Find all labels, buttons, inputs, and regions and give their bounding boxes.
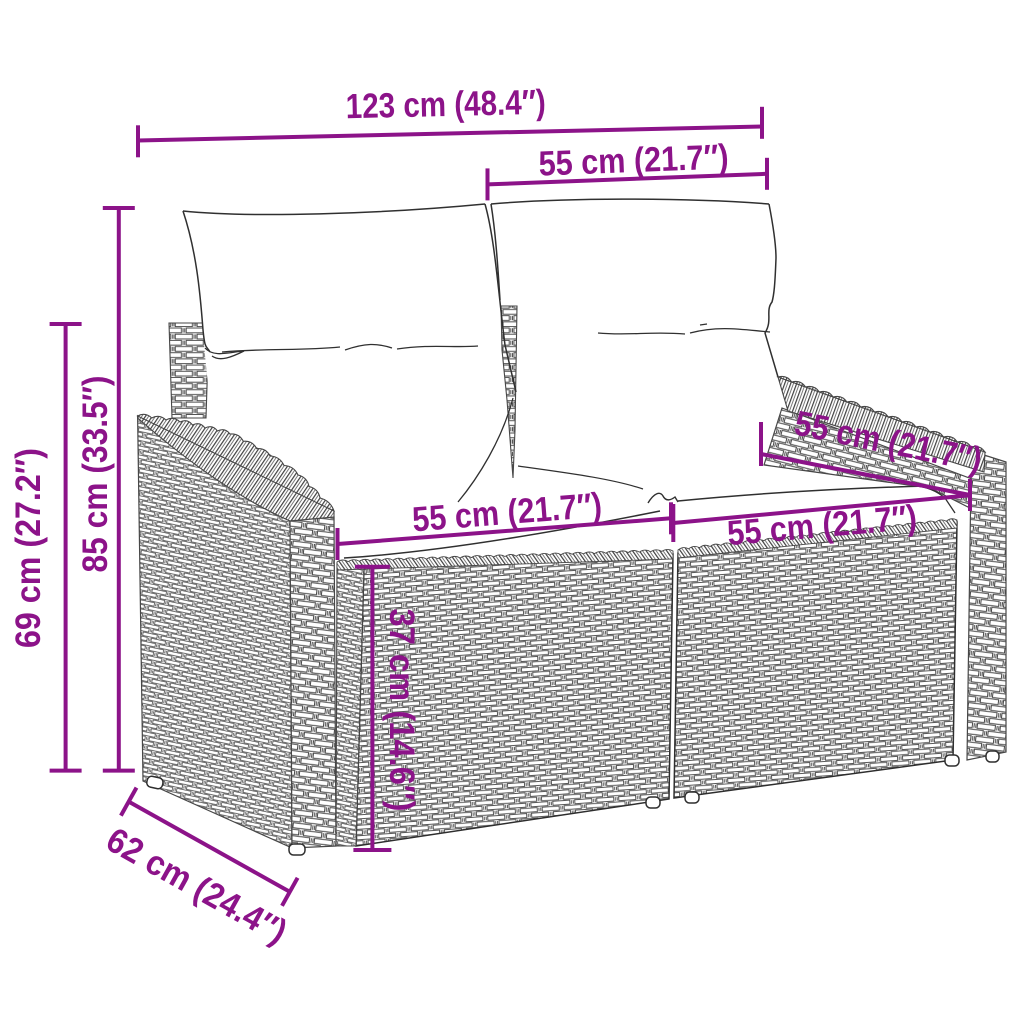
svg-text:37 cm (14.6″): 37 cm (14.6″) bbox=[382, 609, 421, 812]
svg-text:85 cm (33.5″): 85 cm (33.5″) bbox=[76, 376, 115, 573]
svg-text:55 cm (21.7″): 55 cm (21.7″) bbox=[538, 137, 729, 183]
svg-text:123 cm (48.4″): 123 cm (48.4″) bbox=[345, 83, 546, 127]
svg-text:69 cm (27.2″): 69 cm (27.2″) bbox=[9, 448, 48, 648]
